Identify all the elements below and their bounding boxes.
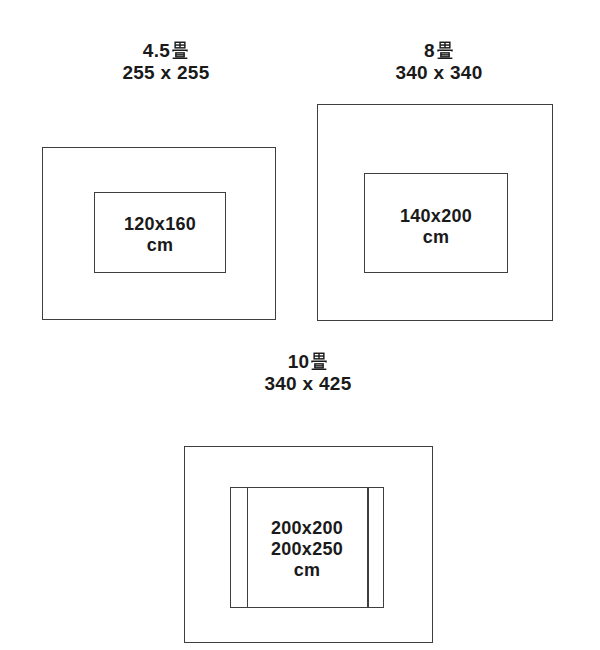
rug-size-label: 200x200 200x250 cm: [271, 514, 343, 581]
rug-outline-200x250: 200x200 200x250 cm: [230, 487, 384, 608]
rug-size-line: 200x200: [271, 518, 343, 539]
rug-200-width-divider-left: [247, 488, 249, 607]
tatami-count-label: 10: [190, 351, 426, 373]
rug-unit-line: cm: [124, 235, 196, 256]
room-dimensions-label: 340 x 425: [190, 373, 426, 395]
tatami-kanji-icon: [310, 352, 328, 370]
rug-size-line: 120x160: [124, 214, 196, 235]
tatami-kanji-icon: [171, 41, 189, 59]
room-outline-8-tatami: 140x200 cm: [317, 104, 553, 321]
room-outline-4-5-tatami: 120x160 cm: [42, 147, 276, 320]
rug-outline-120x160: 120x160 cm: [94, 192, 226, 273]
rug-size-line: 200x250: [271, 539, 343, 560]
rug-size-label: 120x160 cm: [124, 209, 196, 256]
tatami-number: 8: [424, 40, 435, 61]
room-title-10-tatami: 10 340 x 425: [190, 351, 426, 395]
tatami-number: 4.5: [143, 40, 170, 61]
room-outline-10-tatami: 200x200 200x250 cm: [184, 446, 433, 643]
rug-size-line: 140x200: [400, 206, 472, 227]
rug-size-guide-diagram: 4.5 255 x 255 120x160 cm 8 340 x 340 140…: [0, 0, 600, 650]
tatami-count-label: 4.5: [49, 40, 283, 62]
tatami-count-label: 8: [321, 40, 557, 62]
rug-outline-140x200: 140x200 cm: [364, 173, 508, 273]
rug-200-width-divider-right: [367, 488, 369, 607]
tatami-number: 10: [288, 351, 310, 372]
rug-unit-line: cm: [271, 560, 343, 581]
tatami-kanji-icon: [436, 41, 454, 59]
rug-size-label: 140x200 cm: [400, 198, 472, 248]
rug-unit-line: cm: [400, 227, 472, 248]
room-dimensions-label: 340 x 340: [321, 62, 557, 84]
room-title-8-tatami: 8 340 x 340: [321, 40, 557, 84]
room-dimensions-label: 255 x 255: [49, 62, 283, 84]
room-title-4-5-tatami: 4.5 255 x 255: [49, 40, 283, 84]
